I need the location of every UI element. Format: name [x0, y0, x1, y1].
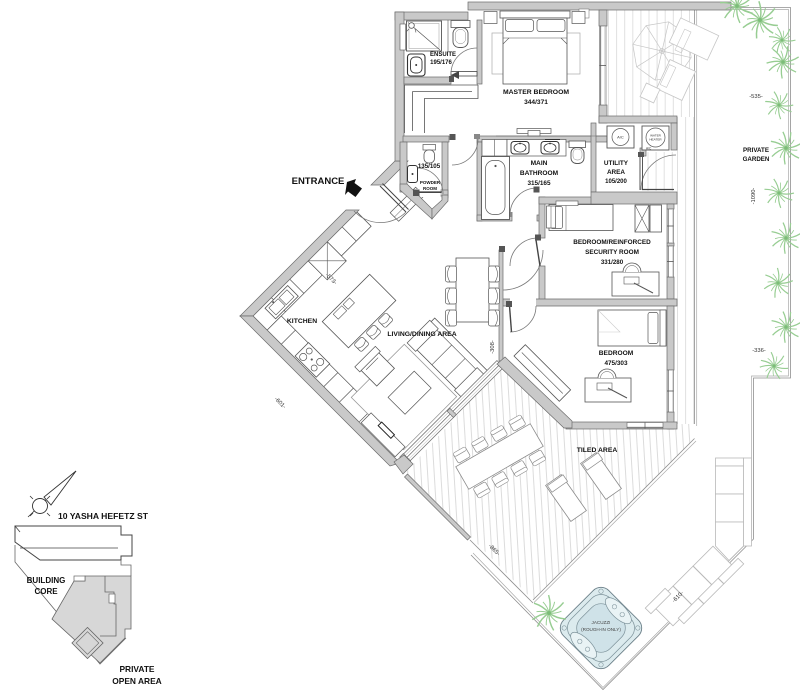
- svg-text:A/C: A/C: [646, 147, 652, 151]
- svg-text:MAIN: MAIN: [531, 160, 548, 167]
- svg-text:HEATER: HEATER: [649, 137, 662, 141]
- svg-text:BEDROOM/REINFORCED: BEDROOM/REINFORCED: [573, 239, 651, 246]
- svg-text:PRIVATE: PRIVATE: [119, 664, 154, 674]
- svg-text:344/371: 344/371: [524, 99, 548, 106]
- svg-text:135/105: 135/105: [418, 163, 441, 170]
- svg-text:331/280: 331/280: [601, 259, 624, 266]
- svg-text:OPEN AREA: OPEN AREA: [112, 676, 161, 686]
- svg-text:LIVING/DINING AREA: LIVING/DINING AREA: [387, 331, 456, 338]
- svg-text:GARDEN: GARDEN: [743, 156, 770, 163]
- svg-text:-336-: -336-: [752, 348, 766, 354]
- svg-text:POWDER: POWDER: [420, 180, 441, 185]
- svg-text:ENTRANCE: ENTRANCE: [292, 176, 345, 187]
- svg-text:475/303: 475/303: [604, 360, 628, 367]
- svg-text:ENSUITE: ENSUITE: [430, 52, 456, 58]
- svg-text:10 YASHA HEFETZ ST: 10 YASHA HEFETZ ST: [58, 511, 149, 521]
- svg-text:-535-: -535-: [749, 94, 763, 100]
- svg-text:CORE: CORE: [34, 587, 58, 596]
- svg-text:BUILDING: BUILDING: [27, 576, 66, 585]
- svg-text:-1090-: -1090-: [751, 188, 757, 205]
- svg-text:PRIVATE: PRIVATE: [743, 147, 769, 154]
- svg-text:TILED AREA: TILED AREA: [577, 447, 618, 454]
- svg-text:SECURITY ROOM: SECURITY ROOM: [585, 249, 639, 256]
- svg-text:MASTER BEDROOM: MASTER BEDROOM: [503, 89, 569, 96]
- svg-text:195/176: 195/176: [430, 60, 452, 66]
- svg-text:(ROUGH-IN ONLY): (ROUGH-IN ONLY): [581, 627, 621, 632]
- svg-text:A/C: A/C: [617, 135, 624, 140]
- svg-text:105/200: 105/200: [605, 179, 627, 185]
- svg-text:KITCHEN: KITCHEN: [287, 318, 317, 325]
- svg-text:JACUZZI: JACUZZI: [592, 620, 611, 625]
- svg-text:315/165: 315/165: [527, 180, 551, 187]
- svg-text:AREA: AREA: [607, 169, 625, 176]
- svg-text:BEDROOM: BEDROOM: [599, 350, 634, 357]
- svg-text:BATHROOM: BATHROOM: [520, 170, 559, 177]
- svg-text:ROOM: ROOM: [423, 186, 437, 191]
- svg-text:UTILITY: UTILITY: [604, 160, 629, 167]
- svg-text:-308-: -308-: [490, 340, 496, 354]
